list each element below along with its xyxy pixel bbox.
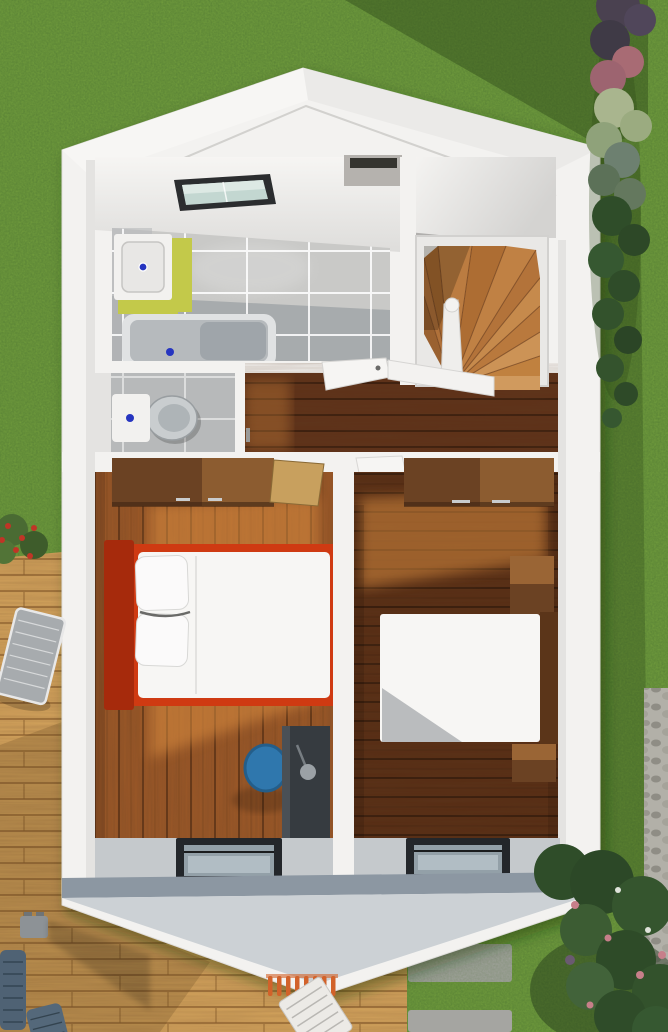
wardrobe-door-dark (404, 458, 480, 506)
bush (618, 224, 650, 256)
divider-shade (354, 505, 364, 838)
right-inner-wall (558, 240, 566, 878)
wardrobe-handle (492, 500, 510, 503)
toilet-flush-button (126, 414, 134, 422)
wc-room (95, 361, 248, 458)
wardrobe-handle (208, 498, 222, 501)
bush (592, 298, 624, 330)
newel-cap (445, 298, 459, 312)
pillow (135, 555, 189, 611)
chimney (344, 155, 402, 186)
floor-plan-render (0, 0, 668, 1032)
bush (620, 110, 652, 142)
ladder-rail (266, 974, 338, 978)
bed-headboard (540, 612, 560, 744)
ladder-rung (268, 976, 273, 996)
desk-lamp (300, 764, 316, 780)
chimney-slot (350, 158, 397, 168)
bathroom (112, 228, 390, 368)
flower-white (645, 927, 651, 933)
desk-edge (282, 726, 290, 840)
toilet-bowl-inner (158, 404, 190, 432)
stairwell-ceiling (416, 157, 556, 238)
bush (614, 382, 638, 406)
roof-window-left (176, 838, 282, 882)
side-table (20, 916, 48, 938)
flower-white (615, 887, 621, 893)
wardrobe-bedroom1 (112, 458, 274, 507)
desk-chair (245, 745, 287, 791)
wardrobe-door-light (480, 458, 554, 506)
bed-headboard (104, 540, 134, 710)
sink-faucet (139, 263, 147, 271)
table-handle (24, 912, 32, 916)
double-bed-white (380, 612, 560, 744)
ladder-rung (277, 976, 282, 996)
bedroom-left (95, 458, 336, 840)
paver-slab (408, 1010, 512, 1032)
nightstand-front (510, 584, 554, 614)
wardrobe-bedroom2 (404, 458, 554, 507)
stair-partition-wall (400, 157, 416, 385)
bathtub-drain (166, 348, 174, 356)
wardrobe-edge (404, 502, 554, 507)
bathtub (122, 314, 276, 368)
left-inner-wall (86, 160, 95, 878)
open-door-bedroom1 (270, 460, 324, 506)
vanity-sink (114, 234, 192, 314)
pillow (135, 613, 189, 667)
door-handle (376, 366, 381, 371)
door-handle-wc (246, 428, 250, 442)
wardrobe-handle (452, 500, 470, 503)
wall-divider (333, 455, 354, 840)
nightstand-top-face (512, 744, 556, 760)
ladder-rung (286, 976, 291, 996)
table-handle (36, 912, 44, 916)
wc-left-wall-face (95, 373, 111, 458)
nightstand-top (510, 556, 554, 614)
bush (608, 270, 640, 302)
bedroom-right (354, 458, 560, 838)
double-bed-red (104, 540, 336, 710)
bush (596, 354, 624, 382)
skylight-light-pool (190, 242, 310, 294)
bush (614, 326, 642, 354)
bush (20, 531, 48, 559)
wardrobe-edge (112, 502, 274, 507)
flower-purple (565, 955, 575, 965)
hall-light (245, 380, 290, 450)
ladder-rung (331, 976, 336, 996)
scene-svg (0, 0, 668, 1032)
bathtub-shadow (200, 322, 266, 360)
nightstand-bottom (512, 744, 556, 782)
toilet (112, 394, 201, 444)
window-glass-light (418, 855, 498, 870)
window-glass-light (188, 856, 270, 873)
bush (624, 4, 656, 36)
wardrobe-handle (176, 498, 190, 501)
divider-stub (333, 838, 354, 878)
bush (602, 408, 622, 428)
bedroom1-wall-shade (95, 472, 105, 838)
